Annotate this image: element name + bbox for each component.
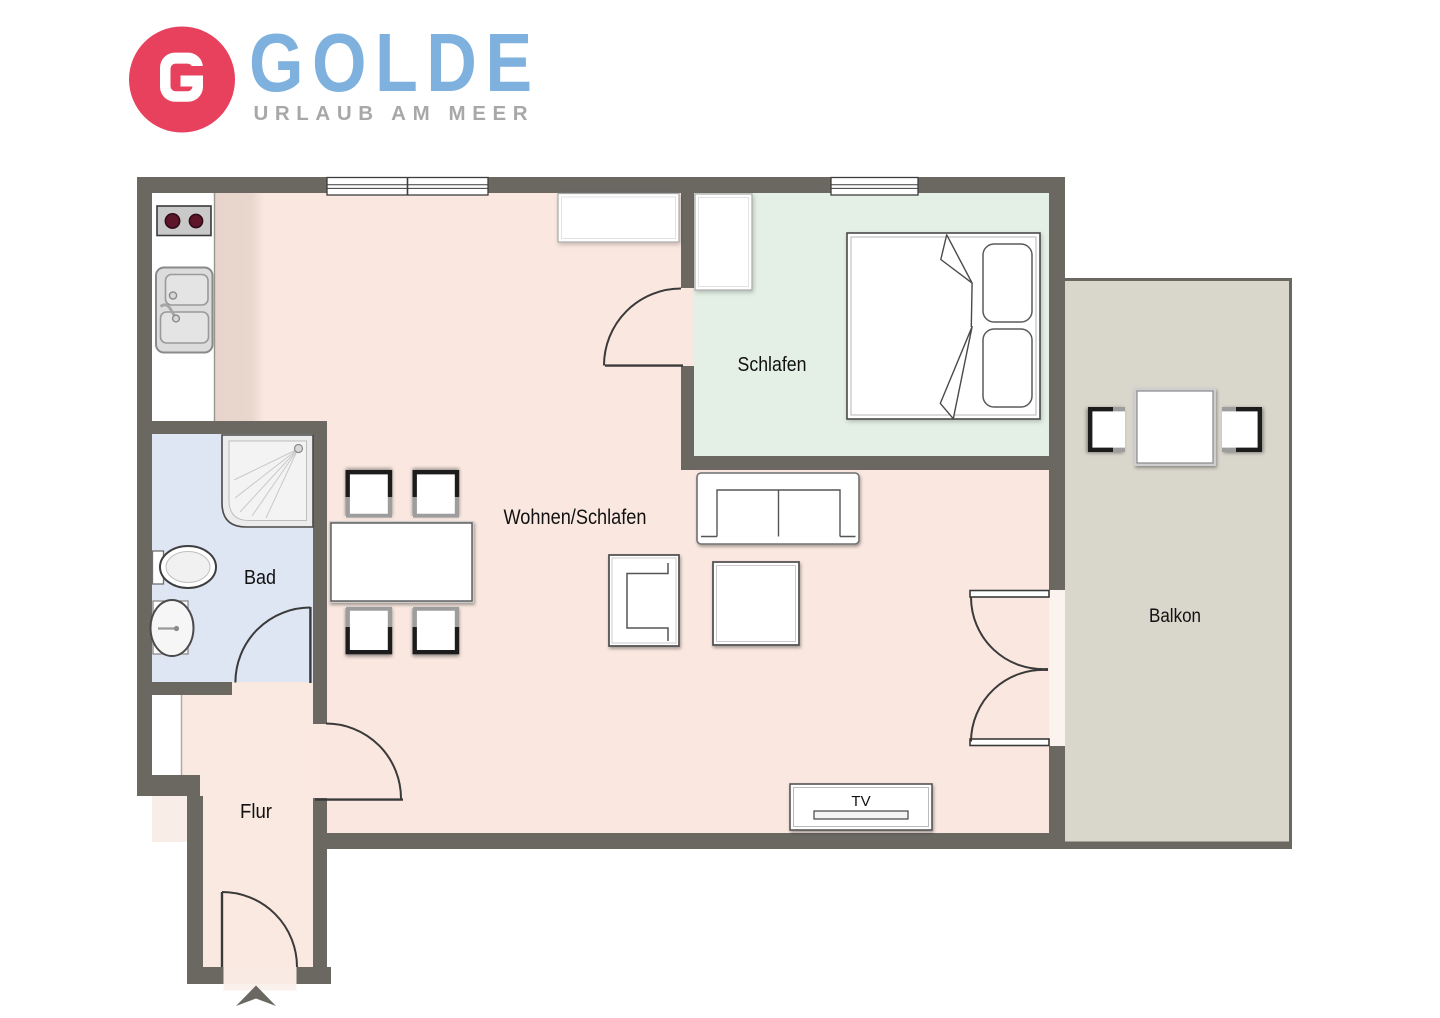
svg-text:Schlafen: Schlafen	[738, 354, 807, 376]
svg-text:GOLDE: GOLDE	[249, 16, 541, 109]
svg-text:Bad: Bad	[244, 567, 276, 589]
svg-text:TV: TV	[851, 793, 870, 810]
svg-text:URLAUB AM MEER: URLAUB AM MEER	[254, 102, 535, 125]
svg-text:Wohnen/Schlafen: Wohnen/Schlafen	[504, 506, 647, 529]
svg-text:Flur: Flur	[240, 801, 272, 823]
svg-text:Balkon: Balkon	[1149, 606, 1201, 627]
